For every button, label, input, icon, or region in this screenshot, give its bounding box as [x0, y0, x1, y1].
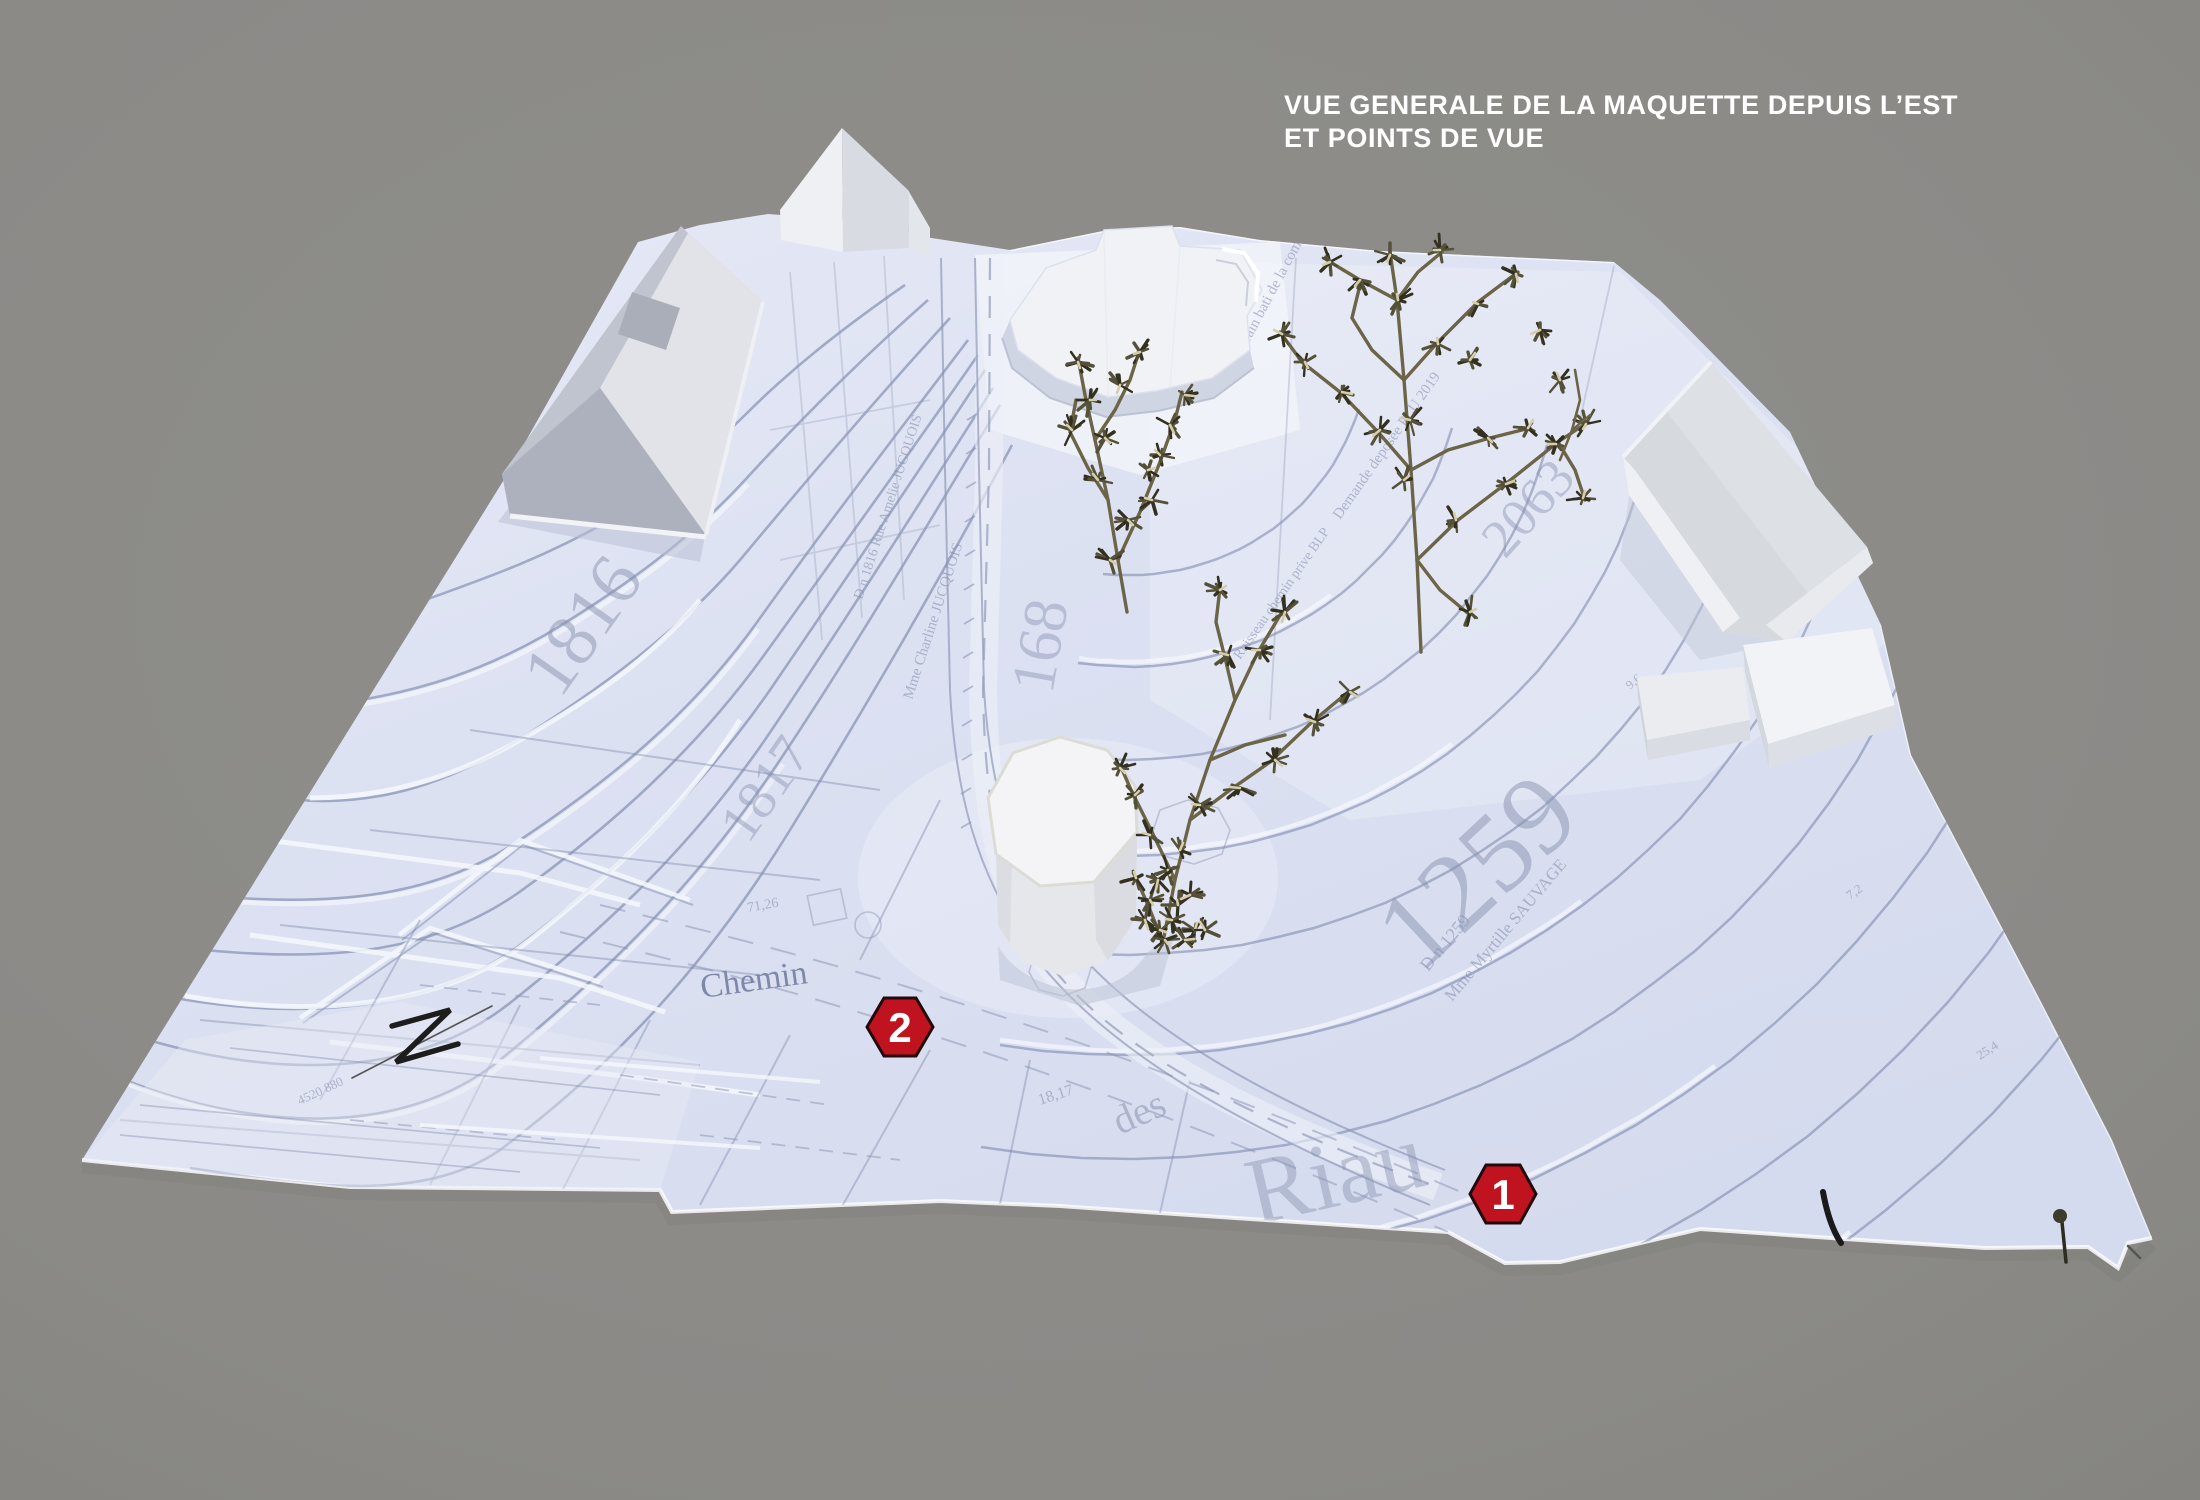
svg-text:2: 2	[888, 1004, 911, 1051]
svg-text:1: 1	[1491, 1171, 1514, 1218]
svg-text:VUE GENERALE DE LA MAQUETTE DE: VUE GENERALE DE LA MAQUETTE DEPUIS L’EST	[1284, 90, 1958, 120]
svg-text:ET POINTS DE VUE: ET POINTS DE VUE	[1284, 123, 1544, 153]
